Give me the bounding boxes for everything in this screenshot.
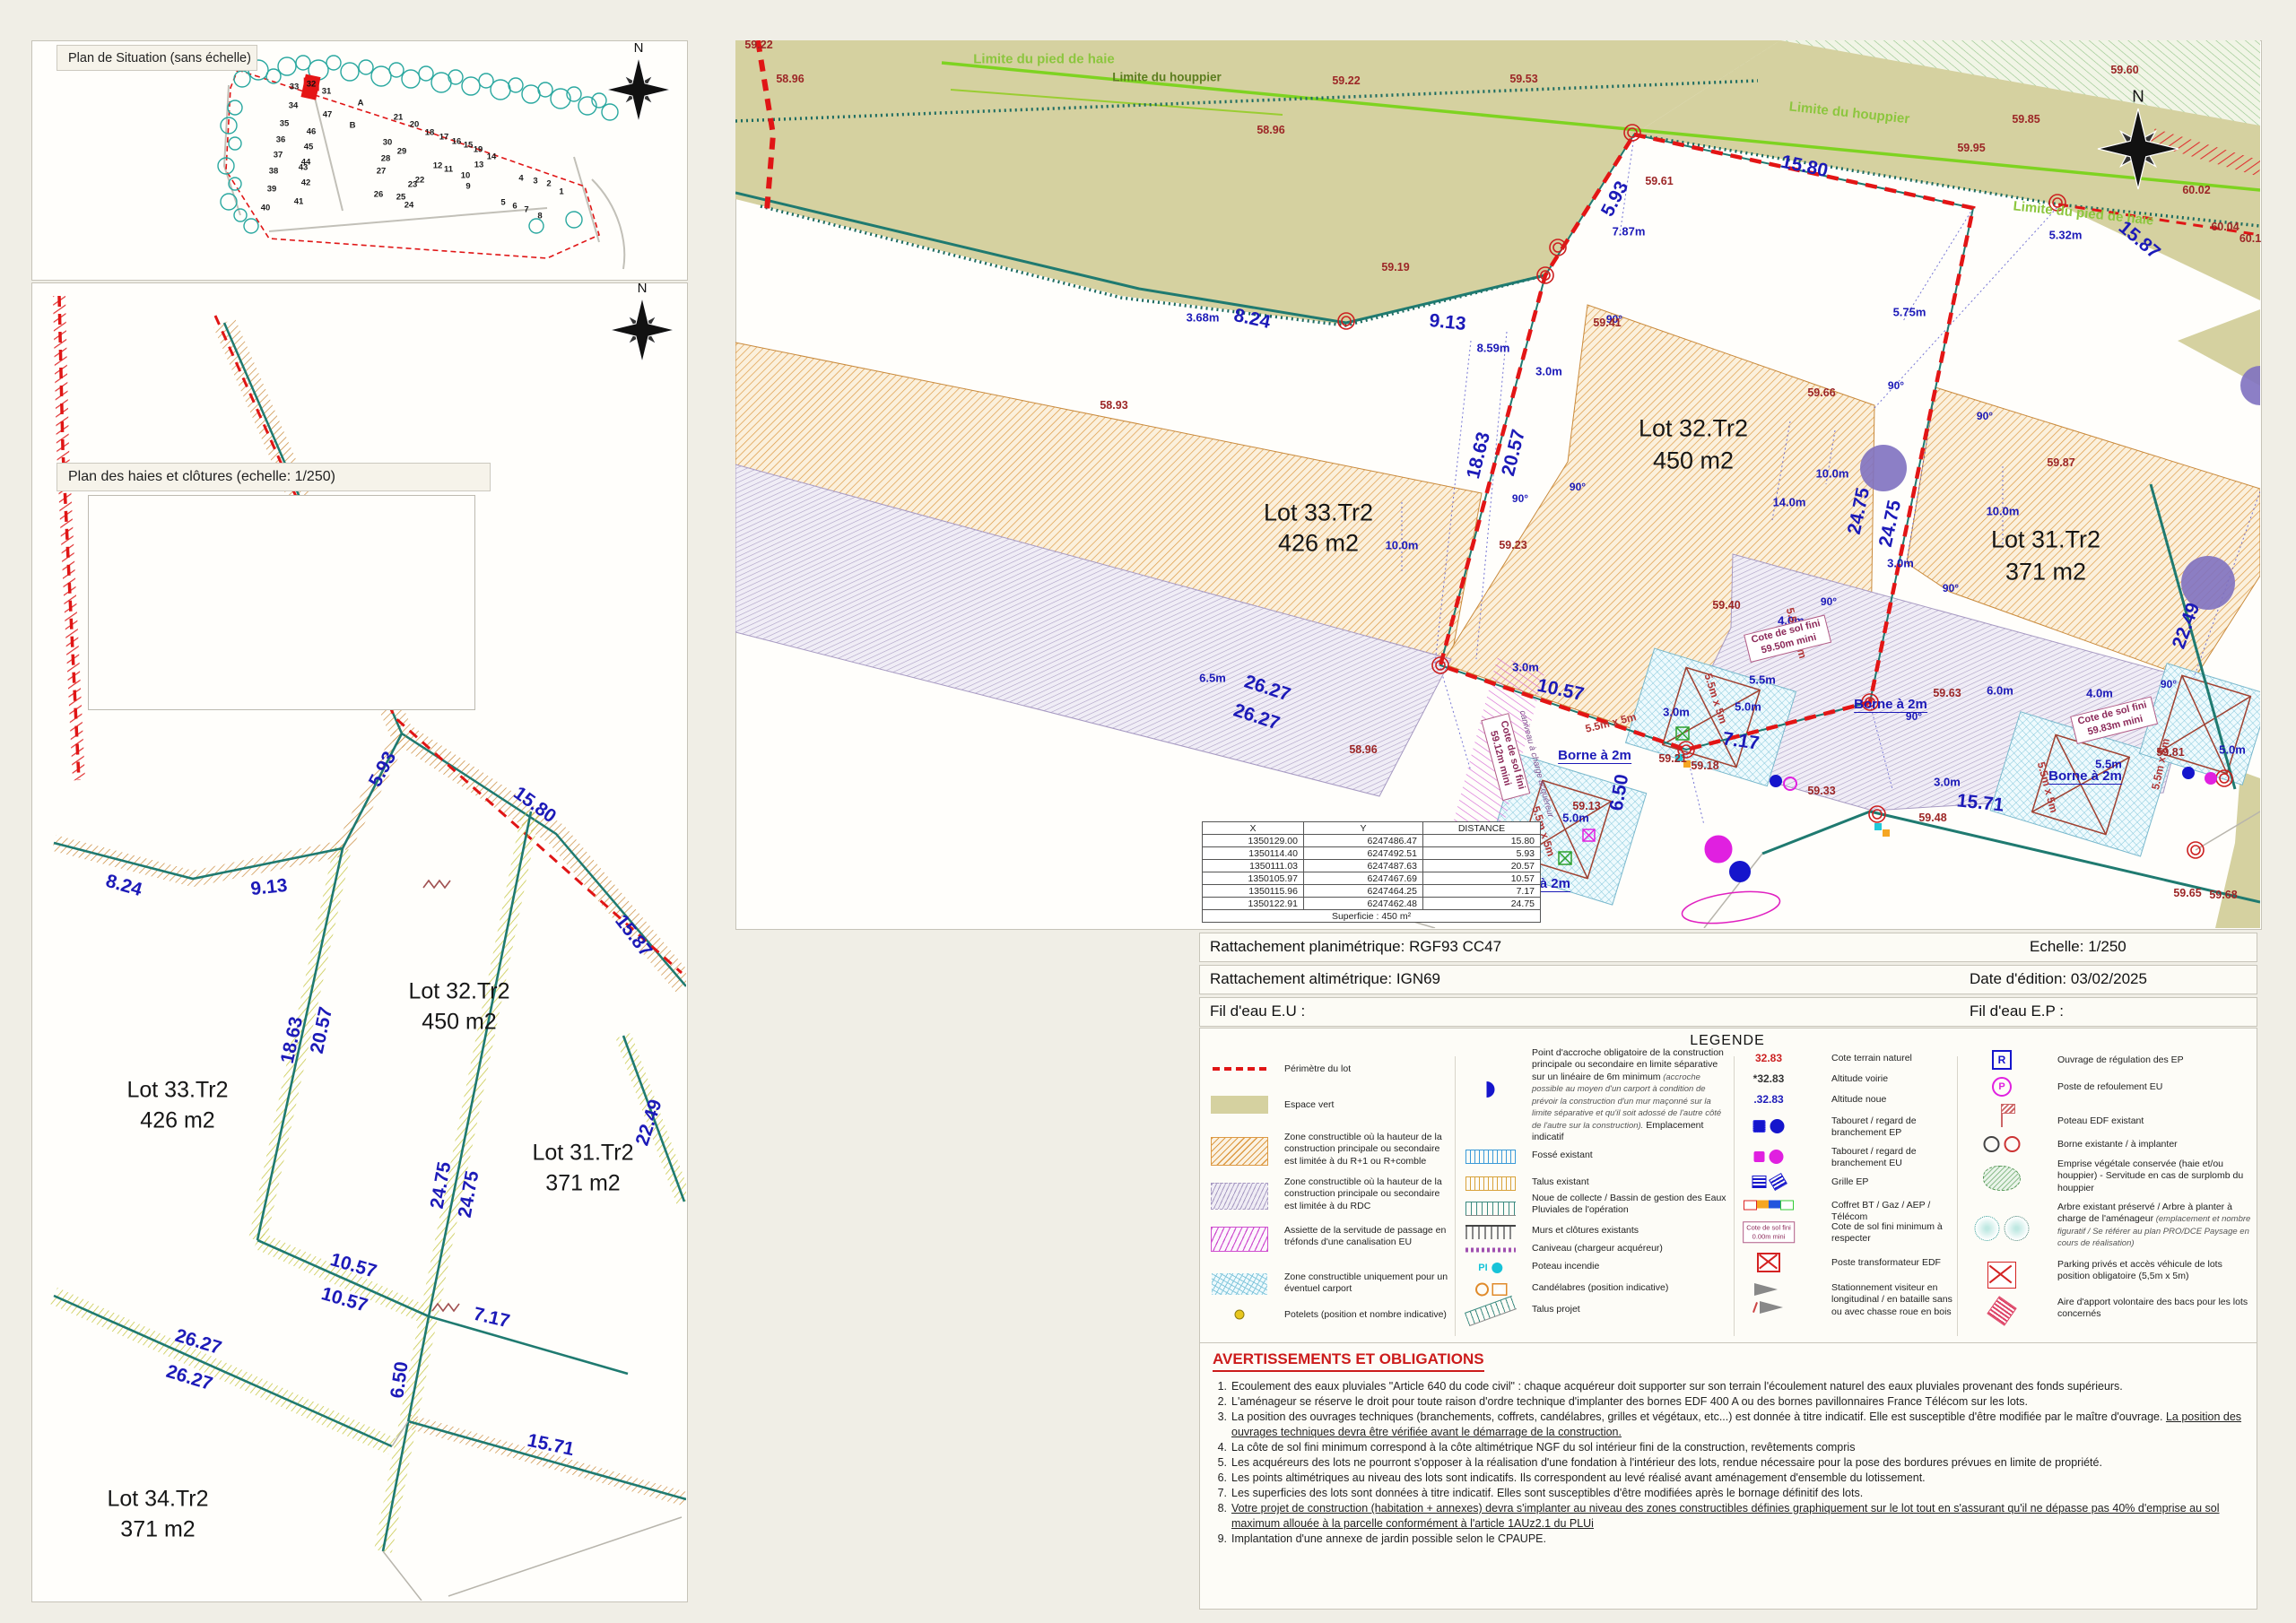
measurement-label: 24.75: [427, 1160, 457, 1211]
measurement-label: 22.49: [631, 1097, 666, 1148]
situation-lot-number: 21: [394, 113, 404, 123]
measurement-label: 90°: [1977, 410, 1993, 422]
measurement-label: 5.0m: [1562, 811, 1589, 825]
lot-label: Lot 32.Tr2: [1639, 415, 1748, 443]
situation-lot-number: 24: [404, 201, 414, 211]
measurement-label: Limite du houppier: [1112, 71, 1222, 84]
situation-lot-number: 19: [474, 145, 483, 155]
situation-title-box: Plan de Situation (sans échelle): [57, 45, 257, 71]
situation-lot-number: 11: [444, 165, 453, 175]
table-cell: 1350111.03: [1203, 860, 1304, 872]
table-cell: 7.17: [1423, 885, 1541, 898]
plan-document-page: N Plan de Situation (sans échelle): [0, 0, 2296, 1623]
lot-label: 371 m2: [2005, 559, 2086, 586]
table-cell: 6247467.69: [1304, 872, 1423, 885]
situation-lot-number: 40: [261, 204, 271, 213]
lot-label: 371 m2: [545, 1171, 620, 1197]
altitude-label: 59.85: [2012, 113, 2039, 126]
haies-title-box: Plan des haies et clôtures (echelle: 1/2…: [57, 463, 491, 491]
situation-lot-number: 10: [461, 171, 471, 181]
measurement-label: 90°: [1943, 582, 1959, 595]
measurement-label: Limite du pied de haie: [2013, 198, 2154, 228]
lot-label: Lot 34.Tr2: [107, 1487, 208, 1513]
measurement-label: 90°: [1570, 481, 1586, 493]
measurement-label: 24.75: [1875, 499, 1906, 549]
measurement-label: 18.63: [1463, 430, 1495, 482]
situation-lot-number: 3: [533, 177, 537, 187]
lot-label: Lot 33.Tr2: [1264, 499, 1373, 527]
measurement-label: 90°: [1888, 379, 1904, 392]
situation-lot-number: 14: [487, 152, 497, 162]
measurement-label: 3.0m: [1663, 706, 1690, 719]
haies-legend-box: [88, 495, 475, 710]
measurement-label: 6.50: [1606, 773, 1634, 812]
situation-lot-number: 16: [452, 137, 462, 147]
altitude-label: 59.13: [1572, 800, 1600, 812]
lot-label: 426 m2: [140, 1108, 214, 1134]
altitude-label: 59.18: [1691, 759, 1718, 772]
altitude-label: 59.33: [1807, 785, 1835, 797]
table-row: 1350129.006247486.4715.80: [1203, 835, 1541, 847]
table-cell: 24.75: [1423, 898, 1541, 910]
measurement-label: caniveau à charge acquéreur: [1518, 709, 1555, 819]
altitude-label: 59.41: [1593, 317, 1621, 329]
altitude-label: 59.48: [1918, 811, 1946, 824]
labels-overlay: 8.249.135.9315.8015.8718.6320.5724.7524.…: [0, 0, 2296, 1623]
situation-lot-number: 17: [439, 133, 449, 143]
measurement-label: 9.13: [1428, 310, 1466, 335]
table-cell: 6247464.25: [1304, 885, 1423, 898]
situation-lot-number: A: [358, 99, 364, 108]
situation-lot-number: 41: [294, 197, 304, 207]
situation-lot-number: 47: [323, 110, 333, 120]
altitude-label: 59.21: [1658, 752, 1686, 765]
situation-lot-number: 29: [397, 147, 407, 157]
table-header: Y: [1304, 822, 1423, 835]
measurement-label: 26.27: [172, 1325, 223, 1359]
altitude-label: 59.95: [1957, 142, 1985, 154]
situation-lot-number: 18: [425, 128, 435, 138]
haies-title: Plan des haies et clôtures (echelle: 1/2…: [68, 469, 335, 485]
altitude-label: 59.60: [2110, 64, 2138, 76]
measurement-label: 5.5m x 5m: [1701, 672, 1729, 725]
measurement-label: 5.5m x 5m: [2149, 737, 2172, 791]
measurement-label: 26.27: [1231, 699, 1282, 734]
measurement-label: 10.0m: [1987, 505, 2020, 518]
measurement-label: 10.0m: [1386, 539, 1419, 552]
measurement-label: 8.24: [103, 871, 144, 901]
situation-lot-number: 26: [374, 190, 384, 200]
altitude-label: 59.53: [1509, 73, 1537, 85]
measurement-label: 6.50: [387, 1360, 413, 1400]
measurement-label: 6.0m: [1987, 684, 2013, 698]
situation-lot-number: 9: [465, 182, 470, 192]
measurement-label: 15.87: [610, 911, 656, 961]
situation-lot-number: 36: [276, 135, 286, 145]
table-cell: 6247487.63: [1304, 860, 1423, 872]
lot-label: Lot 31.Tr2: [532, 1141, 633, 1167]
table-cell: 1350114.40: [1203, 847, 1304, 860]
situation-lot-number: 32: [304, 78, 319, 91]
table-cell: 1350105.97: [1203, 872, 1304, 885]
measurement-label: Borne à 2m: [1558, 748, 1631, 764]
table-cell: 1350115.96: [1203, 885, 1304, 898]
altitude-label: 59.19: [1381, 261, 1409, 273]
table-cell: 6247462.48: [1304, 898, 1423, 910]
table-cell: 20.57: [1423, 860, 1541, 872]
table-row: 1350115.966247464.257.17: [1203, 885, 1541, 898]
cote-sol-fini-label: Cote de sol fini59.83m mini: [2070, 696, 2158, 743]
situation-lot-number: 37: [274, 151, 283, 161]
measurement-label: 7.17: [471, 1304, 511, 1333]
measurement-label: 5.5m: [1749, 673, 1776, 687]
altitude-label: 58.96: [776, 73, 804, 85]
situation-lot-number: 12: [433, 161, 443, 171]
measurement-label: 10.57: [1535, 675, 1586, 706]
situation-lot-number: 15: [464, 141, 474, 151]
situation-lot-number: 13: [474, 161, 484, 170]
measurement-label: 15.71: [526, 1430, 576, 1461]
measurement-label: 3.0m: [1535, 365, 1562, 378]
measurement-label: 7.17: [1721, 728, 1761, 754]
situation-lot-number: 8: [537, 212, 542, 221]
situation-lot-number: 27: [377, 167, 387, 177]
situation-lot-number: 38: [269, 167, 279, 177]
measurement-label: Limite du pied de haie: [973, 52, 1115, 67]
altitude-label: 59.66: [1807, 386, 1835, 399]
situation-lot-number: 7: [524, 205, 528, 215]
altitude-label: 59.65: [2173, 887, 2201, 899]
measurement-label: 20.57: [307, 1005, 337, 1055]
measurement-label: 90°: [1821, 595, 1837, 608]
measurement-label: 15.71: [1956, 790, 2005, 816]
table-cell: 6247492.51: [1304, 847, 1423, 860]
measurement-label: 8.24: [1232, 305, 1273, 334]
measurement-label: 3.0m: [1887, 557, 1914, 570]
measurement-label: 5.75m: [1893, 306, 1926, 319]
measurement-label: 8.59m: [1477, 342, 1510, 355]
measurement-label: 22.49: [2169, 600, 2205, 652]
altitude-label: 60.02: [2182, 184, 2210, 196]
altitude-label: 59.63: [1933, 687, 1961, 699]
measurement-label: 26.27: [1241, 671, 1292, 706]
lot-label: Lot 32.Tr2: [408, 979, 509, 1005]
table-header: DISTANCE: [1423, 822, 1541, 835]
measurement-label: 4.0m: [2086, 687, 2113, 700]
measurement-label: 24.75: [1844, 486, 1874, 536]
measurement-label: 5.0m: [2219, 743, 2246, 757]
situation-lot-number: 6: [512, 202, 517, 212]
measurement-label: 3.0m: [1934, 776, 1961, 789]
measurement-label: 90°: [1512, 492, 1528, 505]
lot-label: 426 m2: [1278, 530, 1359, 558]
table-cell: 1350129.00: [1203, 835, 1304, 847]
altitude-label: 58.96: [1257, 124, 1284, 136]
lot-label: 371 m2: [120, 1517, 195, 1543]
altitude-label: 58.96: [1349, 743, 1377, 756]
situation-lot-number: 1: [559, 187, 563, 197]
measurement-label: 15.80: [1779, 152, 1830, 182]
lot-label: 450 m2: [422, 1010, 496, 1036]
table-cell: 5.93: [1423, 847, 1541, 860]
situation-lot-number: 46: [307, 127, 317, 137]
measurement-label: 18.63: [277, 1015, 308, 1065]
measurement-label: 6.5m: [1199, 672, 1226, 685]
coordinates-table: XYDISTANCE 1350129.006247486.4715.801350…: [1202, 821, 1541, 923]
measurement-label: 90°: [2161, 678, 2177, 690]
measurement-label: 90°: [1906, 710, 1922, 723]
altitude-label: 59.87: [2047, 456, 2074, 469]
table-superficie: Superficie : 450 m²: [1203, 910, 1541, 923]
measurement-label: 5.32m: [2049, 229, 2083, 242]
situation-lot-number: 45: [304, 143, 314, 152]
measurement-label: 5.93: [365, 748, 401, 790]
measurement-label: 5.5m x 5m: [1584, 710, 1638, 735]
altitude-label: 60.04: [2211, 221, 2239, 233]
situation-lot-number: B: [350, 121, 356, 131]
altitude-label: 58.93: [1100, 399, 1127, 412]
table-row: 1350114.406247492.515.93: [1203, 847, 1541, 860]
measurement-label: Limite du houppier: [1788, 99, 1910, 126]
measurement-label: 26.27: [163, 1361, 214, 1395]
table-cell: 10.57: [1423, 872, 1541, 885]
lot-label: Lot 31.Tr2: [1991, 526, 2100, 554]
situation-lot-number: 43: [299, 163, 309, 173]
situation-title: Plan de Situation (sans échelle): [68, 51, 251, 65]
situation-lot-number: 35: [280, 119, 290, 129]
situation-lot-number: 33: [290, 82, 300, 92]
table-cell: 6247486.47: [1304, 835, 1423, 847]
situation-lot-number: 28: [381, 154, 391, 164]
table-row: 1350105.976247467.6910.57: [1203, 872, 1541, 885]
situation-lot-number: 2: [546, 179, 551, 189]
measurement-label: 7.87m: [1613, 225, 1646, 239]
measurement-label: 5.93: [1597, 178, 1633, 220]
situation-lot-number: 5: [500, 198, 505, 208]
altitude-label: 59.23: [1499, 539, 1526, 551]
situation-lot-number: 42: [301, 178, 311, 188]
measurement-label: Borne à 2m: [2048, 768, 2122, 785]
situation-lot-number: 20: [410, 120, 420, 130]
altitude-label: 59.40: [1712, 599, 1740, 612]
situation-lot-number: 31: [322, 87, 332, 97]
measurement-label: 15.80: [509, 783, 561, 828]
situation-lot-number: 39: [267, 185, 277, 195]
measurement-label: 10.57: [318, 1283, 370, 1317]
table-cell: 1350122.91: [1203, 898, 1304, 910]
measurement-label: 20.57: [1498, 428, 1530, 479]
measurement-label: 14.0m: [1773, 496, 1806, 509]
altitude-label: 59.61: [1645, 175, 1673, 187]
situation-lot-number: 30: [383, 138, 393, 148]
altitude-label: 59.22: [1332, 74, 1360, 87]
measurement-label: 10.57: [327, 1249, 378, 1283]
altitude-label: 59.22: [744, 39, 772, 51]
lot-label: Lot 33.Tr2: [126, 1078, 228, 1104]
table-row: 1350122.916247462.4824.75: [1203, 898, 1541, 910]
table-header: X: [1203, 822, 1304, 835]
measurement-label: 10.0m: [1816, 467, 1849, 481]
altitude-label: 60.1: [2239, 232, 2261, 245]
measurement-label: 9.13: [249, 875, 288, 900]
table-cell: 15.80: [1423, 835, 1541, 847]
situation-lot-number: 4: [518, 174, 523, 184]
situation-lot-number: 34: [289, 101, 299, 111]
measurement-label: 24.75: [455, 1169, 484, 1219]
situation-lot-number: 22: [415, 176, 425, 186]
table-row: 1350111.036247487.6320.57: [1203, 860, 1541, 872]
measurement-label: 3.0m: [1512, 661, 1539, 674]
lot-label: 450 m2: [1653, 447, 1734, 475]
altitude-label: 59.68: [2209, 889, 2237, 901]
measurement-label: 5.0m: [1735, 700, 1761, 714]
measurement-label: 3.68m: [1187, 311, 1220, 325]
